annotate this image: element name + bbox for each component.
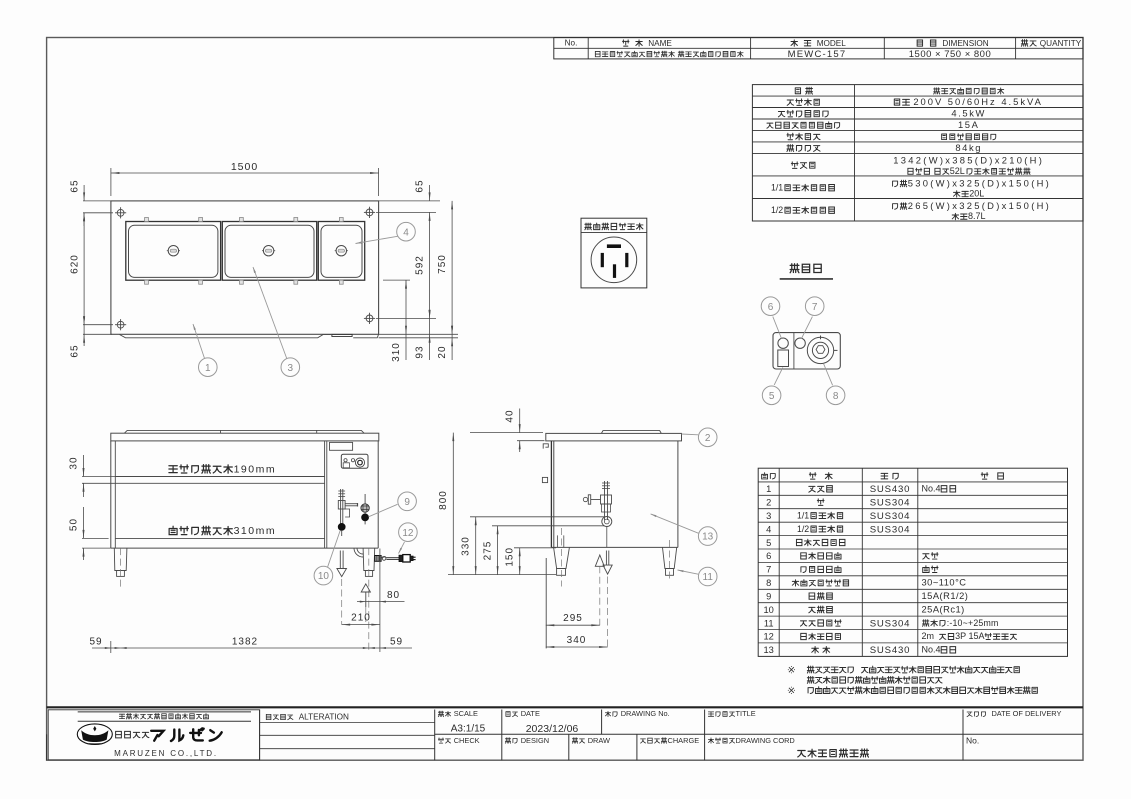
svg-text:65: 65 — [70, 179, 81, 192]
svg-text:10: 10 — [764, 605, 774, 615]
svg-text:150: 150 — [505, 547, 516, 567]
svg-text:SUS430: SUS430 — [870, 645, 911, 656]
svg-text:11: 11 — [764, 618, 774, 628]
svg-text:3P 15A: 3P 15A — [955, 631, 984, 641]
svg-text:2: 2 — [705, 433, 711, 444]
svg-text:No.: No. — [565, 39, 578, 48]
svg-text:DRAW: DRAW — [588, 736, 610, 745]
svg-text:52L: 52L — [950, 166, 965, 176]
svg-text:A3:1/15: A3:1/15 — [451, 724, 486, 735]
svg-text:65: 65 — [415, 179, 426, 192]
svg-text:SUS304: SUS304 — [870, 524, 911, 535]
svg-text:11: 11 — [703, 572, 714, 583]
svg-text:DATE: DATE — [521, 709, 540, 718]
svg-text:DIMENSION: DIMENSION — [942, 39, 988, 48]
svg-text:310: 310 — [391, 342, 402, 362]
svg-text:12: 12 — [764, 632, 774, 642]
svg-text:84kg: 84kg — [955, 142, 982, 153]
svg-text:30~110°C: 30~110°C — [922, 578, 967, 588]
svg-text:295: 295 — [563, 613, 583, 624]
svg-text:ALTERATION: ALTERATION — [299, 712, 349, 721]
svg-text:MARUZEN CO.,LTD.: MARUZEN CO.,LTD. — [114, 749, 218, 758]
svg-text:25A(Rc1): 25A(Rc1) — [922, 604, 965, 614]
svg-text:3: 3 — [766, 511, 771, 521]
svg-text:3: 3 — [288, 363, 294, 374]
svg-text:MEWC-157: MEWC-157 — [788, 49, 847, 60]
svg-text:No.4: No.4 — [922, 645, 941, 655]
svg-text:50: 50 — [69, 518, 80, 531]
svg-text:750: 750 — [437, 254, 448, 274]
svg-text:CHECK: CHECK — [454, 736, 480, 745]
svg-text:DATE OF DELIVERY: DATE OF DELIVERY — [991, 709, 1061, 718]
svg-text:NAME: NAME — [648, 39, 672, 48]
svg-text:59: 59 — [390, 637, 403, 648]
svg-text:SUS304: SUS304 — [870, 511, 911, 522]
svg-text:5: 5 — [766, 538, 771, 548]
svg-text:12: 12 — [402, 528, 414, 539]
svg-text:13: 13 — [764, 645, 774, 655]
svg-text:1/1: 1/1 — [797, 510, 809, 520]
svg-text:TITLE: TITLE — [736, 709, 756, 718]
svg-text:330: 330 — [461, 536, 472, 556]
svg-text:5: 5 — [769, 391, 775, 402]
svg-text:340: 340 — [567, 635, 587, 646]
svg-text:13: 13 — [702, 532, 714, 543]
svg-text:DESIGN: DESIGN — [521, 736, 549, 745]
svg-text:SCALE: SCALE — [454, 709, 478, 718]
svg-text:15A(R1/2): 15A(R1/2) — [922, 591, 969, 601]
svg-text:No.: No. — [966, 736, 979, 746]
svg-text:6: 6 — [768, 302, 774, 313]
svg-text:9: 9 — [766, 591, 771, 601]
svg-text:30: 30 — [69, 456, 80, 469]
svg-text:SUS304: SUS304 — [870, 498, 911, 509]
svg-text:4: 4 — [766, 524, 771, 534]
svg-text:8.7L: 8.7L — [968, 211, 986, 221]
svg-text:8: 8 — [766, 578, 771, 588]
svg-text:530(W)x325(D)x150(H): 530(W)x325(D)x150(H) — [908, 177, 1051, 188]
svg-text:800: 800 — [438, 490, 449, 510]
svg-text:SUS304: SUS304 — [870, 618, 911, 629]
svg-text:1342(W)x385(D)x210(H): 1342(W)x385(D)x210(H) — [893, 154, 1044, 165]
svg-text:210: 210 — [351, 613, 371, 624]
svg-text:9: 9 — [404, 497, 410, 508]
svg-text:1382: 1382 — [232, 637, 258, 648]
svg-text:65: 65 — [70, 344, 81, 357]
svg-text::-10~+25mm: :-10~+25mm — [947, 618, 999, 628]
svg-text:1/2: 1/2 — [797, 524, 809, 534]
svg-text:275: 275 — [483, 541, 494, 561]
svg-text:93: 93 — [415, 345, 426, 358]
svg-text:2m: 2m — [922, 631, 935, 641]
svg-text:200V 50/60Hz 4.5kVA: 200V 50/60Hz 4.5kVA — [913, 96, 1043, 107]
svg-text:QUANTITY: QUANTITY — [1040, 39, 1082, 48]
svg-text:1/1: 1/1 — [771, 183, 783, 193]
svg-text:10: 10 — [318, 571, 330, 582]
svg-text:DRAWING CORD: DRAWING CORD — [736, 736, 795, 745]
svg-text:265(W)x325(D)x150(H): 265(W)x325(D)x150(H) — [908, 200, 1051, 211]
svg-text:1500: 1500 — [231, 161, 258, 173]
svg-text:7: 7 — [812, 302, 818, 313]
svg-text:20: 20 — [437, 345, 448, 358]
svg-text:SUS430: SUS430 — [870, 484, 911, 495]
svg-text:40: 40 — [505, 409, 516, 422]
svg-text:4: 4 — [403, 227, 409, 238]
svg-text:592: 592 — [415, 255, 426, 275]
svg-text:1/2: 1/2 — [771, 205, 783, 215]
svg-text:7: 7 — [766, 565, 771, 575]
svg-text:1500 × 750 × 800: 1500 × 750 × 800 — [909, 49, 992, 60]
svg-text:310mm: 310mm — [234, 525, 277, 537]
svg-text:2023/12/06: 2023/12/06 — [526, 723, 579, 735]
svg-text:No.4: No.4 — [922, 484, 941, 494]
svg-text:620: 620 — [70, 254, 81, 274]
svg-text:80: 80 — [387, 590, 400, 601]
svg-text:1: 1 — [766, 484, 771, 494]
svg-text:15A: 15A — [958, 119, 979, 130]
svg-text:190mm: 190mm — [234, 464, 277, 476]
svg-text:59: 59 — [89, 637, 102, 648]
svg-text:20L: 20L — [969, 189, 984, 199]
svg-text:6: 6 — [766, 551, 771, 561]
svg-text:CHARGE: CHARGE — [668, 736, 700, 745]
svg-text:4.5kW: 4.5kW — [951, 108, 986, 119]
svg-text:8: 8 — [833, 391, 839, 402]
svg-text:1: 1 — [205, 363, 211, 374]
svg-text:2: 2 — [766, 498, 771, 508]
svg-text:DRAWING No.: DRAWING No. — [621, 709, 670, 718]
svg-text:MODEL: MODEL — [817, 39, 847, 48]
